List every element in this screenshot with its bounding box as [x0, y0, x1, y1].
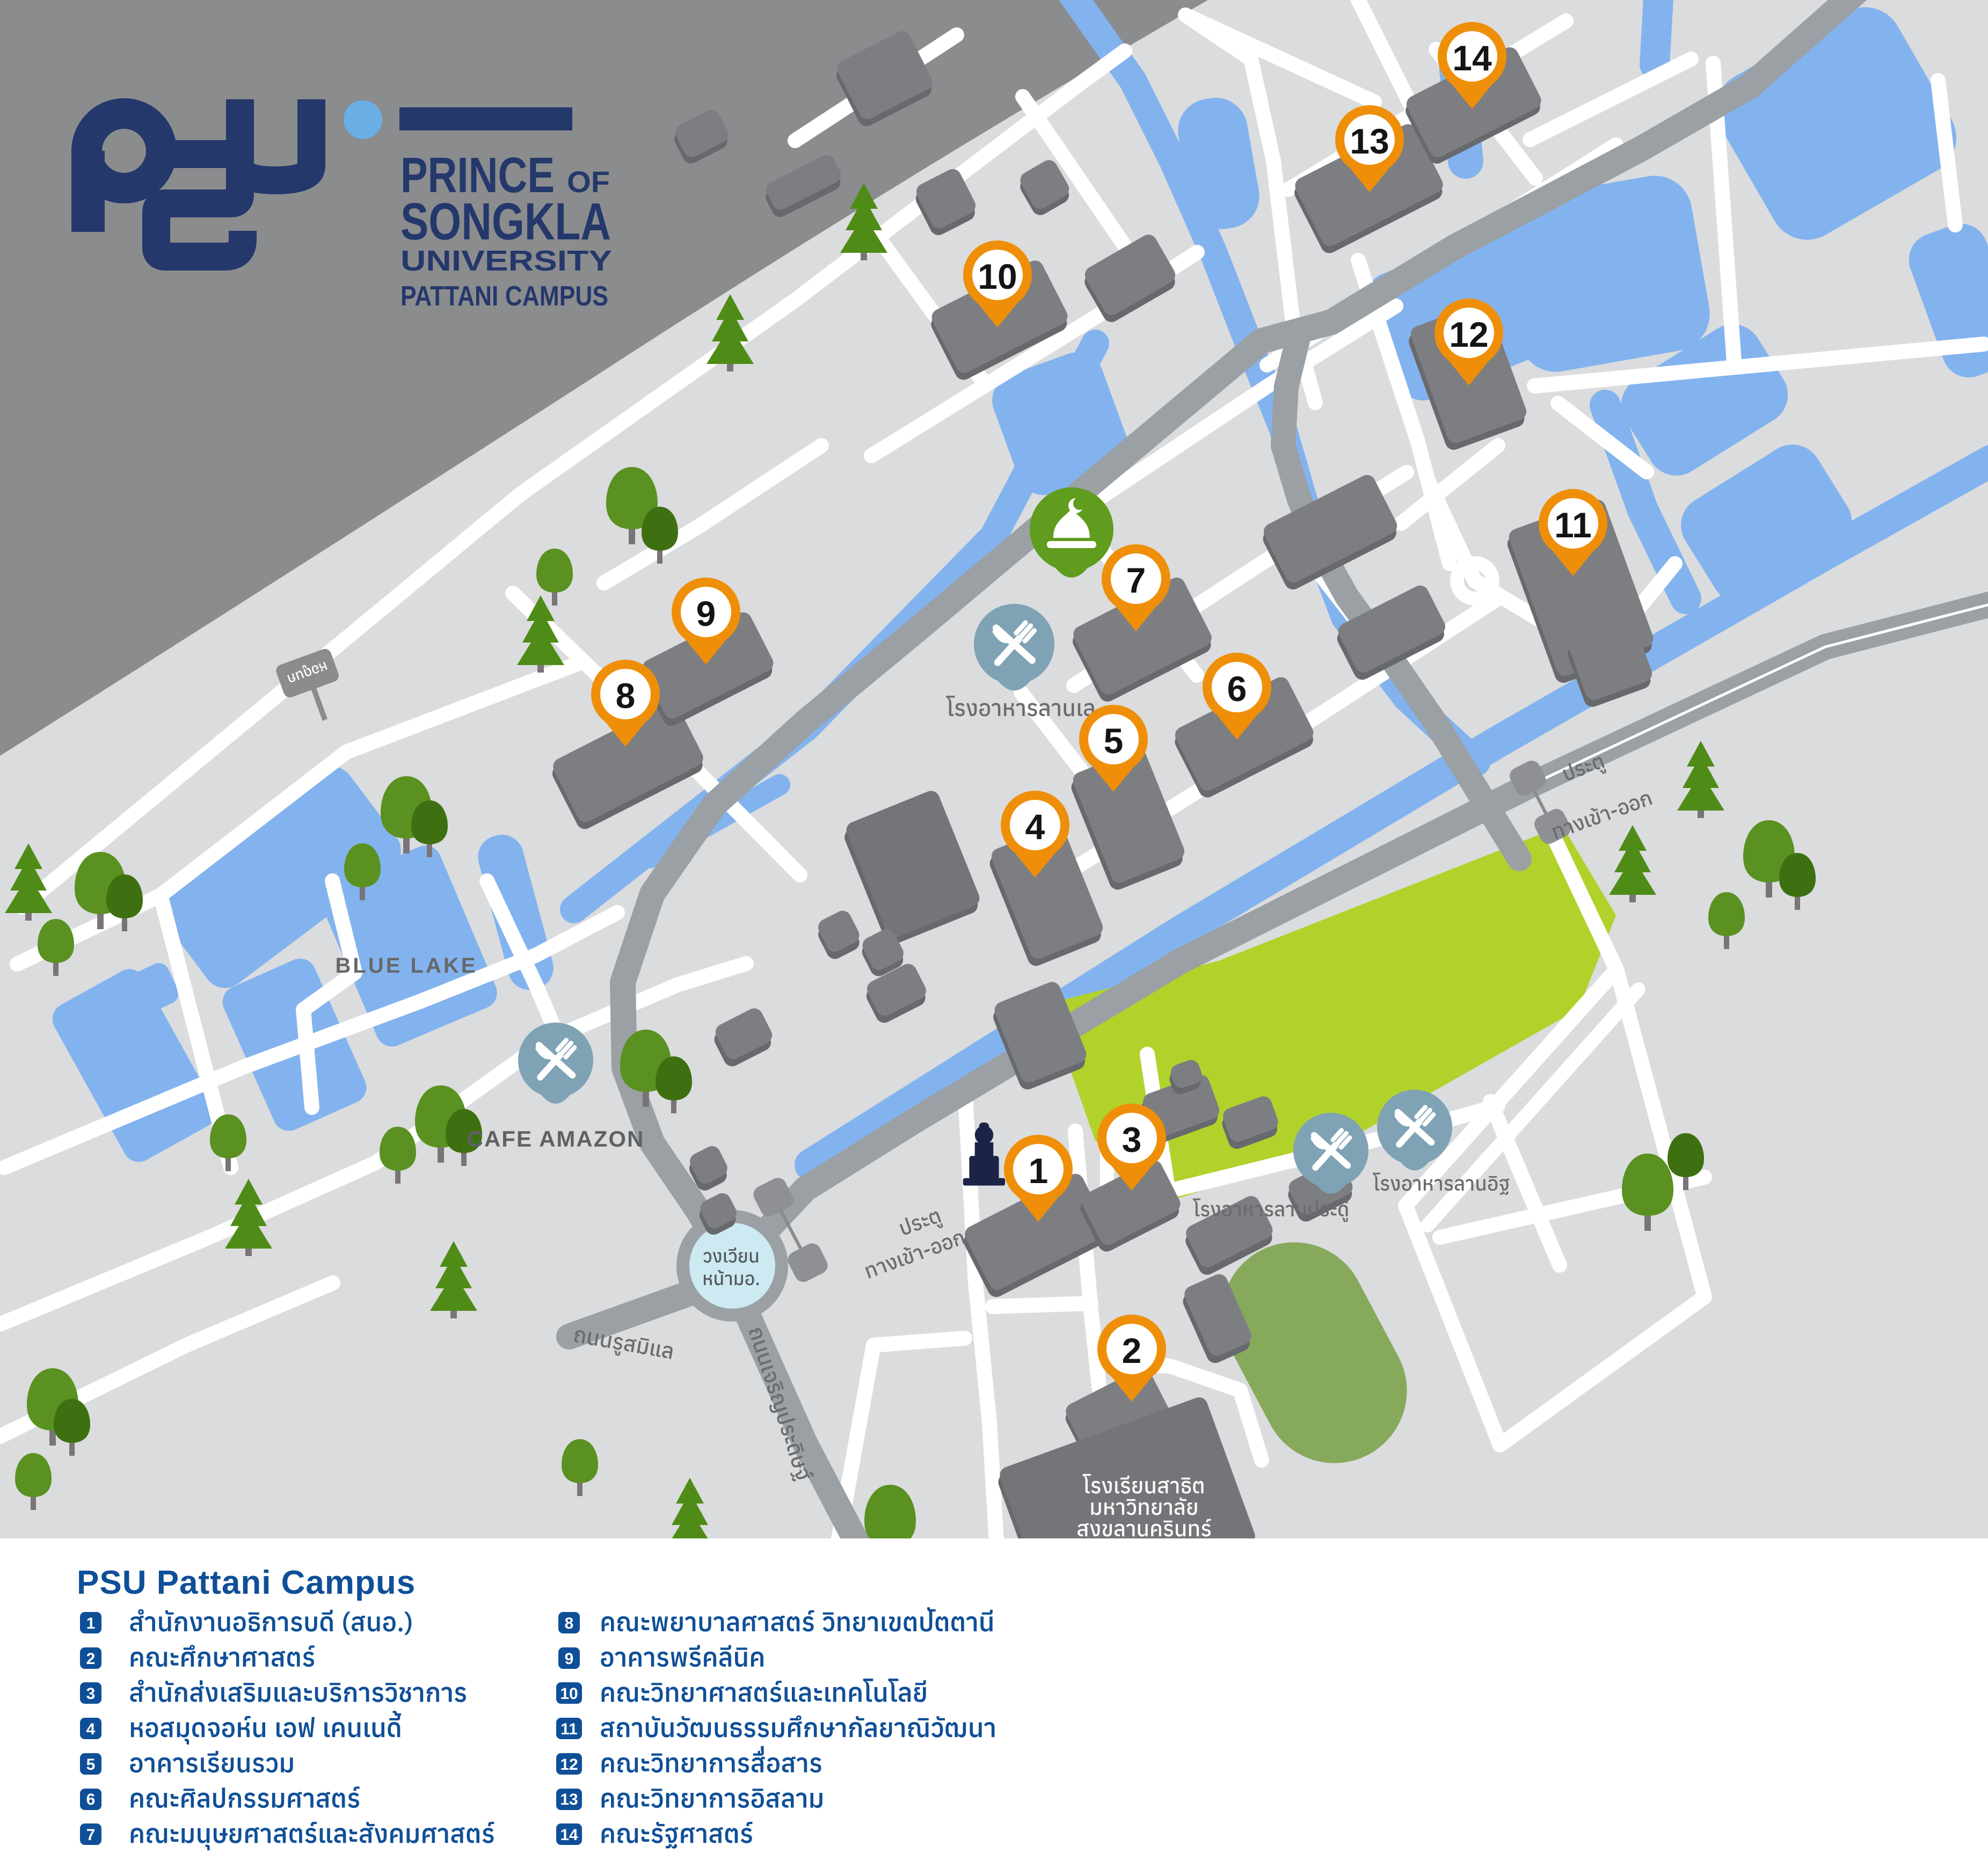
svg-text:12: 12 — [560, 1756, 578, 1774]
svg-text:5: 5 — [1104, 721, 1124, 761]
svg-text:3: 3 — [86, 1685, 96, 1703]
svg-text:6: 6 — [86, 1791, 96, 1808]
svg-text:14: 14 — [1452, 38, 1492, 78]
svg-text:PATTANI CAMPUS: PATTANI CAMPUS — [400, 281, 608, 312]
svg-text:9: 9 — [696, 594, 716, 633]
svg-text:2: 2 — [86, 1650, 96, 1668]
svg-text:8: 8 — [565, 1615, 574, 1632]
svg-text:10: 10 — [560, 1685, 578, 1703]
svg-text:12: 12 — [1449, 315, 1488, 354]
svg-text:8: 8 — [616, 676, 636, 716]
svg-text:UNIVERSITY: UNIVERSITY — [400, 245, 612, 277]
svg-text:11: 11 — [560, 1720, 578, 1738]
svg-text:2: 2 — [1122, 1331, 1142, 1370]
svg-text:1: 1 — [86, 1615, 96, 1632]
svg-text:SONGKLA: SONGKLA — [400, 192, 611, 251]
svg-text:3: 3 — [1122, 1120, 1142, 1159]
svg-text:6: 6 — [1227, 669, 1247, 709]
svg-text:CAFE AMAZON: CAFE AMAZON — [467, 1126, 645, 1151]
svg-text:10: 10 — [978, 257, 1017, 296]
svg-text:9: 9 — [565, 1650, 574, 1668]
svg-text:5: 5 — [86, 1756, 96, 1774]
svg-text:11: 11 — [1554, 505, 1592, 545]
svg-text:1: 1 — [1029, 1151, 1048, 1191]
svg-text:4: 4 — [86, 1720, 96, 1738]
svg-text:4: 4 — [1025, 807, 1045, 847]
svg-text:PSU Pattani Campus: PSU Pattani Campus — [77, 1564, 416, 1601]
svg-text:13: 13 — [560, 1791, 578, 1808]
svg-text:BLUE LAKE: BLUE LAKE — [336, 954, 478, 977]
svg-text:7: 7 — [1126, 560, 1146, 600]
svg-text:7: 7 — [86, 1826, 96, 1844]
svg-text:14: 14 — [560, 1826, 578, 1844]
svg-text:13: 13 — [1350, 121, 1389, 161]
